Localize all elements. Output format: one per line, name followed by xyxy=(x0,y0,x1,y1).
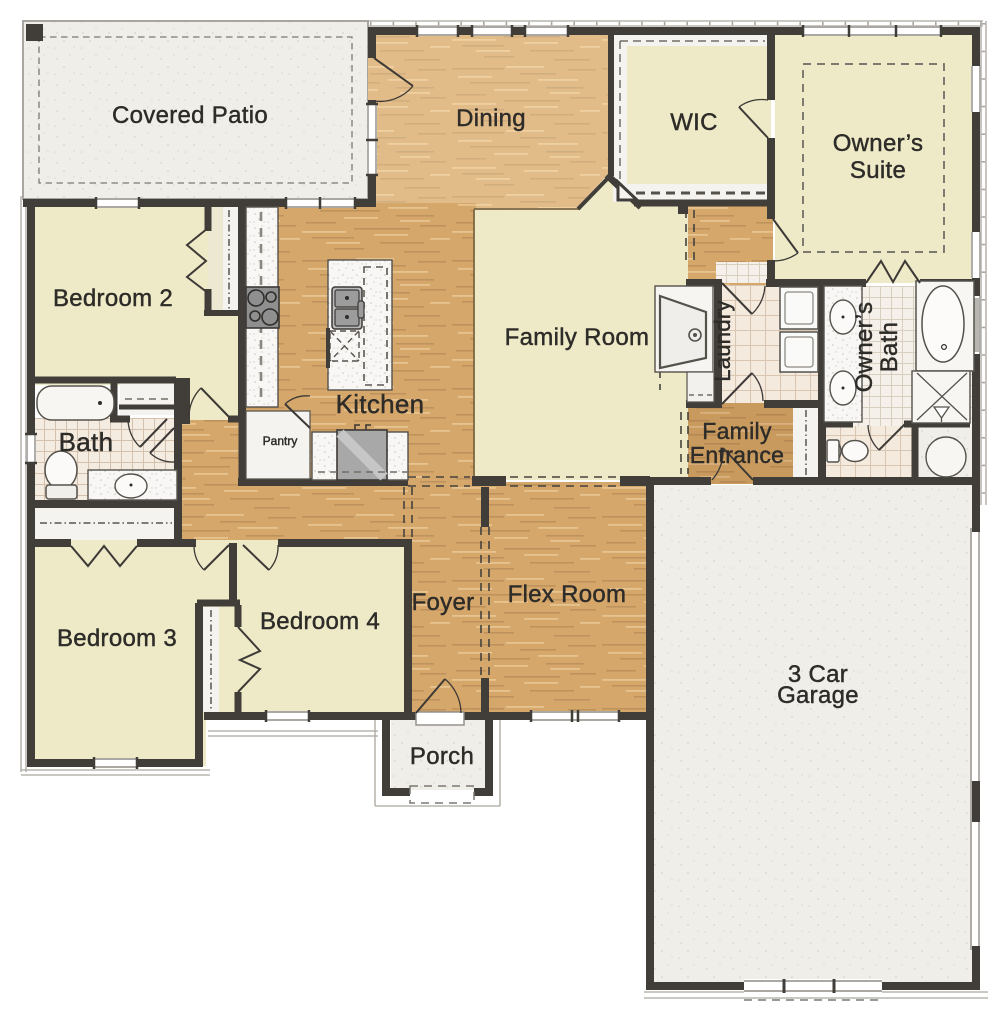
svg-text:Bath: Bath xyxy=(876,322,903,373)
svg-text:Porch: Porch xyxy=(410,743,474,770)
svg-text:Pantry: Pantry xyxy=(263,434,298,448)
svg-text:Dining: Dining xyxy=(456,105,526,132)
svg-text:Bedroom 3: Bedroom 3 xyxy=(57,625,177,652)
svg-text:Kitchen: Kitchen xyxy=(336,389,425,419)
svg-text:Family Room: Family Room xyxy=(505,324,650,351)
svg-text:Laundry: Laundry xyxy=(710,300,735,382)
svg-text:Bath: Bath xyxy=(59,427,114,457)
svg-text:Flex Room: Flex Room xyxy=(508,581,627,608)
svg-text:Entrance: Entrance xyxy=(690,442,784,468)
svg-text:WIC: WIC xyxy=(670,109,718,136)
svg-text:Garage: Garage xyxy=(777,682,859,709)
svg-text:Covered Patio: Covered Patio xyxy=(112,102,268,129)
svg-text:Owner’s: Owner’s xyxy=(851,302,878,393)
svg-text:Family: Family xyxy=(702,418,772,444)
svg-text:Bedroom 4: Bedroom 4 xyxy=(260,608,380,635)
svg-text:Foyer: Foyer xyxy=(412,589,475,616)
svg-text:Owner’s: Owner’s xyxy=(833,130,924,157)
svg-text:Bedroom 2: Bedroom 2 xyxy=(53,285,173,312)
svg-text:Suite: Suite xyxy=(850,157,906,184)
